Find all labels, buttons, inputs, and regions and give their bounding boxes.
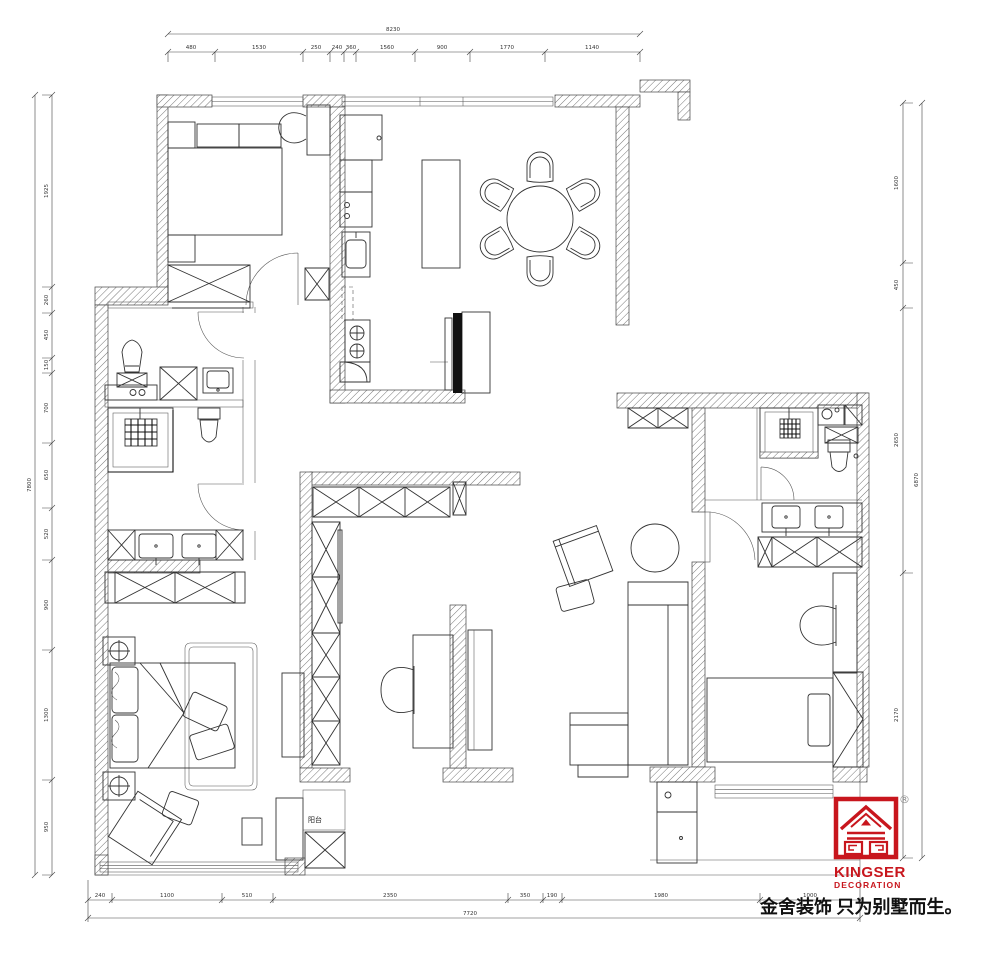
kitchen bbox=[340, 115, 490, 393]
cabinet bbox=[276, 798, 303, 860]
svg-text:250: 250 bbox=[311, 45, 322, 51]
hall-cabinet bbox=[657, 782, 697, 863]
corridor-cabinets bbox=[628, 408, 688, 428]
svg-text:1600: 1600 bbox=[894, 176, 900, 190]
desk bbox=[413, 635, 453, 748]
hand-basin bbox=[203, 368, 233, 393]
svg-text:520: 520 bbox=[44, 528, 50, 539]
svg-text:190: 190 bbox=[547, 893, 558, 899]
dim-total-bottom: 7720 bbox=[463, 911, 477, 917]
partitions bbox=[105, 302, 862, 560]
logo-division: DECORATION bbox=[834, 880, 902, 890]
shelf bbox=[468, 630, 492, 750]
svg-text:450: 450 bbox=[894, 279, 900, 290]
floor-plan: 阳台 bbox=[0, 0, 1000, 960]
bed bbox=[110, 663, 235, 768]
chair bbox=[800, 605, 836, 646]
svg-text:1925: 1925 bbox=[44, 184, 50, 198]
wardrobe bbox=[168, 265, 250, 308]
svg-text:1530: 1530 bbox=[252, 45, 266, 51]
stove bbox=[345, 320, 370, 362]
vanity-stool bbox=[279, 113, 306, 143]
svg-text:360: 360 bbox=[346, 45, 357, 51]
wardrobe bbox=[105, 572, 245, 603]
round-table bbox=[631, 524, 679, 572]
svg-text:260: 260 bbox=[44, 294, 50, 305]
logo-brand: KINGSER bbox=[834, 864, 906, 881]
svg-text:700: 700 bbox=[44, 402, 50, 413]
svg-text:2650: 2650 bbox=[894, 433, 900, 447]
dim-total-top: 8230 bbox=[386, 27, 400, 33]
wardrobe-row bbox=[758, 537, 862, 567]
wardrobe-column bbox=[312, 522, 340, 765]
dimension-right: 1600 450 2650 2170 6870 bbox=[894, 100, 925, 861]
bed bbox=[707, 672, 863, 767]
sofa bbox=[628, 582, 688, 765]
dining-chairs bbox=[475, 152, 604, 286]
svg-text:1560: 1560 bbox=[380, 45, 394, 51]
svg-text:350: 350 bbox=[520, 893, 531, 899]
throw-pillow bbox=[189, 723, 235, 760]
bed bbox=[168, 148, 282, 235]
svg-text:480: 480 bbox=[186, 45, 197, 51]
nightstand bbox=[168, 122, 195, 148]
svg-text:510: 510 bbox=[242, 893, 253, 899]
master-bathroom bbox=[758, 405, 862, 567]
living-room bbox=[553, 408, 697, 863]
shower bbox=[760, 408, 818, 458]
double-vanity bbox=[108, 530, 243, 565]
svg-text:1100: 1100 bbox=[160, 893, 174, 899]
small-room-label: 阳台 bbox=[308, 815, 322, 824]
door-utility bbox=[198, 312, 244, 358]
svg-text:1980: 1980 bbox=[654, 893, 668, 899]
svg-text:150: 150 bbox=[44, 359, 50, 370]
chaise bbox=[570, 713, 628, 765]
water-heater bbox=[122, 340, 142, 372]
wardrobe-row bbox=[313, 487, 450, 517]
dining-table bbox=[507, 186, 573, 252]
kingser-logo: ® KINGSER DECORATION bbox=[834, 793, 910, 890]
lounge-chair bbox=[108, 791, 181, 865]
svg-text:1140: 1140 bbox=[585, 45, 599, 51]
shower bbox=[108, 408, 173, 472]
blueprint-page: 阳台 bbox=[0, 0, 1000, 960]
svg-text:1300: 1300 bbox=[44, 708, 50, 722]
dimension-top: 8230 480 1530 250 240 360 1560 900 1770 … bbox=[165, 27, 643, 62]
door-suite bbox=[705, 512, 755, 562]
toilet bbox=[198, 408, 220, 442]
double-vanity bbox=[762, 503, 862, 536]
svg-text:2170: 2170 bbox=[894, 708, 900, 722]
storage-cabinet bbox=[305, 832, 345, 868]
dresser bbox=[307, 105, 330, 155]
toilet bbox=[828, 440, 858, 472]
nightstand bbox=[168, 235, 195, 262]
tagline: 金舍装饰 只为别墅而生。 bbox=[759, 896, 963, 917]
dim-total-left: 7800 bbox=[27, 478, 33, 492]
island-counter bbox=[422, 160, 460, 268]
dim-total-right: 6870 bbox=[914, 473, 920, 487]
svg-text:900: 900 bbox=[437, 45, 448, 51]
refrigerator bbox=[445, 312, 490, 393]
desk bbox=[833, 573, 857, 673]
shaft bbox=[305, 268, 329, 300]
kitchen-sink bbox=[342, 232, 370, 277]
desk-chair bbox=[381, 666, 414, 714]
svg-text:450: 450 bbox=[44, 329, 50, 340]
svg-text:900: 900 bbox=[44, 599, 50, 610]
door-bedroom-top-left bbox=[246, 253, 298, 305]
side-table bbox=[242, 818, 262, 845]
svg-text:950: 950 bbox=[44, 821, 50, 832]
svg-text:650: 650 bbox=[44, 469, 50, 480]
svg-text:1770: 1770 bbox=[500, 45, 514, 51]
fridge-cabinet bbox=[340, 115, 382, 160]
svg-text:240: 240 bbox=[332, 45, 343, 51]
armchair bbox=[553, 526, 613, 587]
dining-room bbox=[475, 152, 604, 286]
svg-text:2350: 2350 bbox=[383, 893, 397, 899]
door-bathroom-left bbox=[198, 484, 244, 530]
svg-text:240: 240 bbox=[95, 893, 106, 899]
bathroom-left bbox=[105, 340, 243, 565]
dimension-left: 7800 1925 260 450 150 700 650 520 900 13… bbox=[27, 92, 55, 878]
registered-icon: ® bbox=[899, 793, 910, 806]
master-bedroom bbox=[103, 572, 304, 865]
bedroom-top-left bbox=[168, 105, 330, 308]
dimension-bottom: 240 1100 510 2350 350 190 1980 1000 7720 bbox=[85, 880, 863, 922]
bedroom-right bbox=[707, 573, 863, 767]
washing-machine bbox=[160, 367, 197, 400]
door-master-bathroom bbox=[761, 467, 794, 500]
